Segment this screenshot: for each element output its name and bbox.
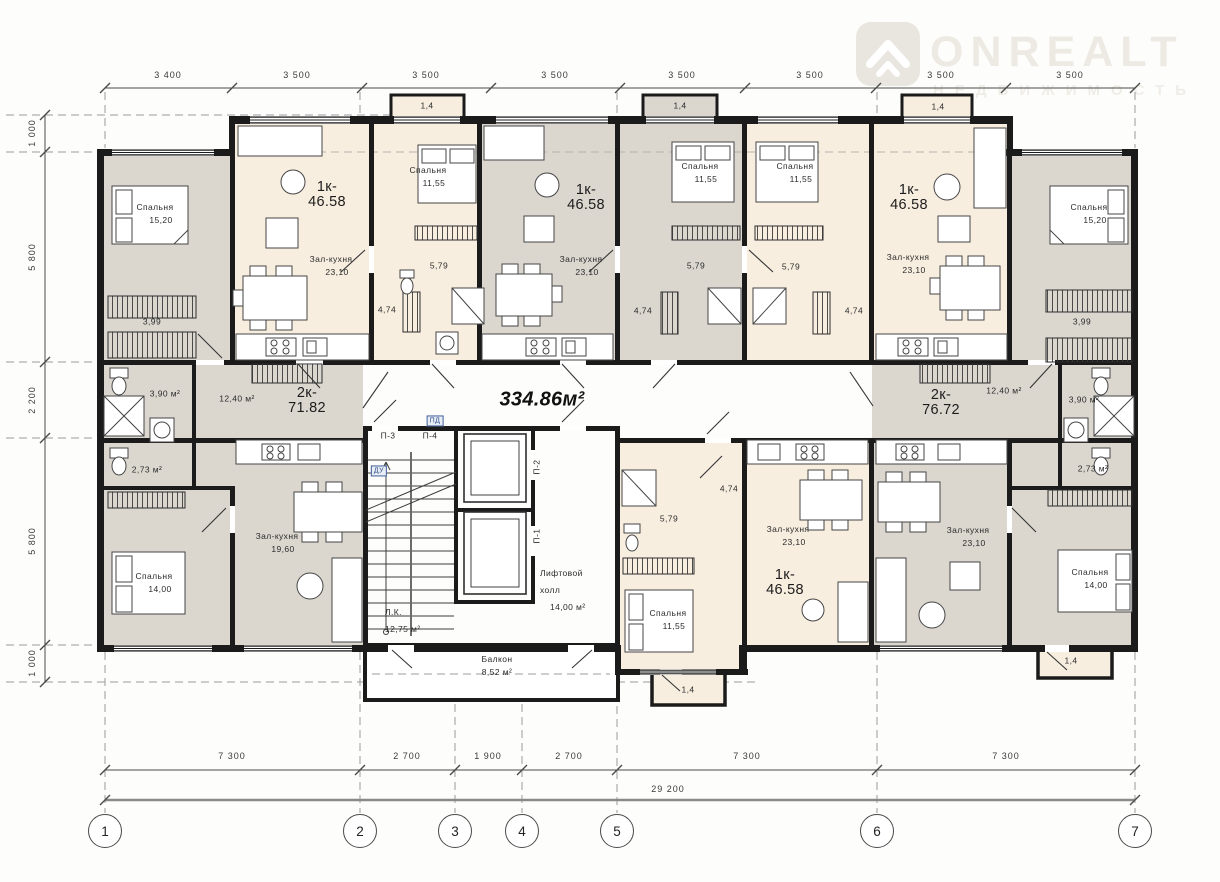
area-bath-b: 4,74 xyxy=(378,303,396,316)
balcony-tag-top-2: 1,4 xyxy=(673,99,686,112)
badge-pd: ПД xyxy=(427,415,444,426)
axis-bubble-2: 2 xyxy=(343,814,377,848)
room-label-bedroom-tl: Спальня15,20 xyxy=(137,201,174,227)
apartment-area: 46.58 xyxy=(567,198,605,213)
apartment-type: 1к- xyxy=(567,183,605,198)
axis-bubble-5: 5 xyxy=(600,814,634,848)
room-area: 11,55 xyxy=(777,173,814,186)
room-area: 23,10 xyxy=(887,264,930,277)
room-label-living-c: Зал-кухня23,10 xyxy=(560,253,603,279)
room-area: 14,00 xyxy=(136,583,173,596)
room-name: Спальня xyxy=(1072,566,1109,579)
apartment-area: 46.58 xyxy=(308,195,346,210)
axis-bubble-4: 4 xyxy=(505,814,539,848)
room-label-bedroom-b: Спальня11,55 xyxy=(410,164,447,190)
axis-bubble-1: 1 xyxy=(88,814,122,848)
room-area: 15,20 xyxy=(137,214,174,227)
apartment-type: 1к- xyxy=(766,568,804,583)
room-area: 12,75 м² xyxy=(385,621,421,638)
room-area: 19,60 xyxy=(256,543,299,556)
dim-left-2: 5 800 xyxy=(26,243,40,271)
stair-label: Л.К.12,75 м² xyxy=(385,604,421,638)
room-area: 14,00 xyxy=(1072,579,1109,592)
floor-plan-page: ONREALT НЕДВИЖИМОСТЬ xyxy=(0,0,1220,882)
dim-bottom-2: 2 700 xyxy=(393,750,421,764)
apartment-area: 71.82 xyxy=(288,401,326,416)
room-label-living-d: Зал-кухня23,10 xyxy=(887,251,930,277)
room-name: Зал-кухня xyxy=(947,524,990,537)
elevator-label-p2: П-2 xyxy=(530,460,543,475)
room-area: 15,20 xyxy=(1071,214,1108,227)
area-bath-d: 4,74 xyxy=(845,304,863,317)
dim-left-1: 1 000 xyxy=(26,119,40,147)
room-label-bedroom-bl: Спальня14,00 xyxy=(136,570,173,596)
area-hall-c: 5,79 xyxy=(687,259,705,272)
axis-bubble-3: 3 xyxy=(438,814,472,848)
area-wc-right: 3,90 м² xyxy=(1069,393,1099,406)
apartment-type: 2к- xyxy=(922,388,960,403)
area-hall-left: 12,40 м² xyxy=(219,392,255,405)
room-name: холл xyxy=(540,582,586,599)
room-label-living-f: Зал-кухня23,10 xyxy=(767,523,810,549)
dim-top-4: 3 500 xyxy=(541,69,569,83)
room-name: Зал-кухня xyxy=(256,530,299,543)
dim-top-2: 3 500 xyxy=(283,69,311,83)
balcony-tag-top-3: 1,4 xyxy=(931,100,944,113)
room-area: 11,55 xyxy=(682,173,719,186)
area-bath-right: 2,73 м² xyxy=(1078,462,1108,475)
room-name: Зал-кухня xyxy=(310,253,353,266)
room-name: Спальня xyxy=(136,570,173,583)
apartment-type: 1к- xyxy=(890,183,928,198)
area-bath-left: 2,73 м² xyxy=(132,463,162,476)
floor-plan-drawing xyxy=(0,0,1220,882)
room-name: Зал-кухня xyxy=(560,253,603,266)
room-name: Спальня xyxy=(777,160,814,173)
apartment-tag-2k-left: 2к-71.82 xyxy=(288,386,326,416)
dim-bottom-5: 7 300 xyxy=(733,750,761,764)
dim-left-5: 1 000 xyxy=(26,649,40,677)
room-label-bedroom-d: Спальня11,55 xyxy=(777,160,814,186)
dim-top-6: 3 500 xyxy=(796,69,824,83)
room-label-living-a: Зал-кухня19,60 xyxy=(256,530,299,556)
room-area: 23,10 xyxy=(310,266,353,279)
area-wardrobe-tl: 3,99 xyxy=(143,315,161,328)
balcony-tag-bottom-1: 1,4 xyxy=(681,683,694,696)
balcony-tag-bottom-2: 1,4 xyxy=(1064,654,1077,667)
apartment-tag-2k-right: 2к-76.72 xyxy=(922,388,960,418)
dim-top-1: 3 400 xyxy=(154,69,182,83)
room-name: Спальня xyxy=(682,160,719,173)
area-hall-d: 5,79 xyxy=(782,260,800,273)
dim-top-5: 3 500 xyxy=(668,69,696,83)
room-area: 14,00 м² xyxy=(540,599,586,616)
room-area: 23,10 xyxy=(767,536,810,549)
badge-du: ДУ xyxy=(371,465,387,476)
elevator-label-p1: П-1 xyxy=(530,529,543,544)
axis-bubble-6: 6 xyxy=(860,814,894,848)
room-name: Зал-кухня xyxy=(767,523,810,536)
area-bath-c: 4,74 xyxy=(634,304,652,317)
apartment-area: 46.58 xyxy=(766,583,804,598)
dim-bottom-1: 7 300 xyxy=(218,750,246,764)
dim-top-3: 3 500 xyxy=(412,69,440,83)
apartment-type: 1к- xyxy=(308,180,346,195)
area-bath-f: 4,74 xyxy=(720,482,738,495)
apartment-tag-1k-d: 1к-46.58 xyxy=(890,183,928,213)
dim-bottom-3: 1 900 xyxy=(474,750,502,764)
area-wardrobe-tr: 3,99 xyxy=(1073,315,1091,328)
axis-bubble-7: 7 xyxy=(1118,814,1152,848)
room-area: 11,55 xyxy=(410,177,447,190)
area-hall-right: 12,40 м² xyxy=(986,384,1022,397)
room-area: 23,10 xyxy=(947,537,990,550)
room-area: 8,52 м² xyxy=(482,666,513,679)
area-hall-f: 5,79 xyxy=(660,512,678,525)
apartment-area: 46.58 xyxy=(890,198,928,213)
room-name: Лифтовой xyxy=(540,565,586,582)
room-label-living-b: Зал-кухня23,10 xyxy=(310,253,353,279)
lift-hall-label: Лифтовойхолл14,00 м² xyxy=(540,565,586,616)
room-name: Спальня xyxy=(410,164,447,177)
room-area: 23,10 xyxy=(560,266,603,279)
room-label-living-g: Зал-кухня23,10 xyxy=(947,524,990,550)
shaft-label-p3: П-3 xyxy=(381,429,396,442)
dim-left-3: 2 200 xyxy=(26,386,40,414)
apartment-tag-1k-f: 1к-46.58 xyxy=(766,568,804,598)
room-name: Спальня xyxy=(650,607,687,620)
room-name: Зал-кухня xyxy=(887,251,930,264)
room-label-bedroom-tr: Спальня15,20 xyxy=(1071,201,1108,227)
room-name: Л.К. xyxy=(385,604,421,621)
apartment-type: 2к- xyxy=(288,386,326,401)
elevators xyxy=(464,434,535,594)
dim-overall: 29 200 xyxy=(651,783,685,797)
room-area: 11,55 xyxy=(650,620,687,633)
dim-top-8: 3 500 xyxy=(1056,69,1084,83)
total-floor-area: 334.86м² xyxy=(499,385,584,416)
room-label-bedroom-f: Спальня11,55 xyxy=(650,607,687,633)
shaft-label-p4: П-4 xyxy=(423,429,438,442)
dim-left-4: 5 800 xyxy=(26,527,40,555)
apartment-area: 76.72 xyxy=(922,403,960,418)
room-label-bedroom-br: Спальня14,00 xyxy=(1072,566,1109,592)
area-hall-b: 5,79 xyxy=(430,259,448,272)
dim-top-7: 3 500 xyxy=(927,69,955,83)
balcony-tag-top-1: 1,4 xyxy=(420,99,433,112)
area-wc-left: 3,90 м² xyxy=(150,387,180,400)
room-label-bedroom-c: Спальня11,55 xyxy=(682,160,719,186)
dim-bottom-4: 2 700 xyxy=(555,750,583,764)
room-name: Балкон xyxy=(482,653,513,666)
room-name: Спальня xyxy=(1071,201,1108,214)
apartment-tag-1k-b: 1к-46.58 xyxy=(308,180,346,210)
balcony-label: Балкон8,52 м² xyxy=(482,653,513,679)
room-name: Спальня xyxy=(137,201,174,214)
dim-bottom-6: 7 300 xyxy=(992,750,1020,764)
apartment-tag-1k-c: 1к-46.58 xyxy=(567,183,605,213)
